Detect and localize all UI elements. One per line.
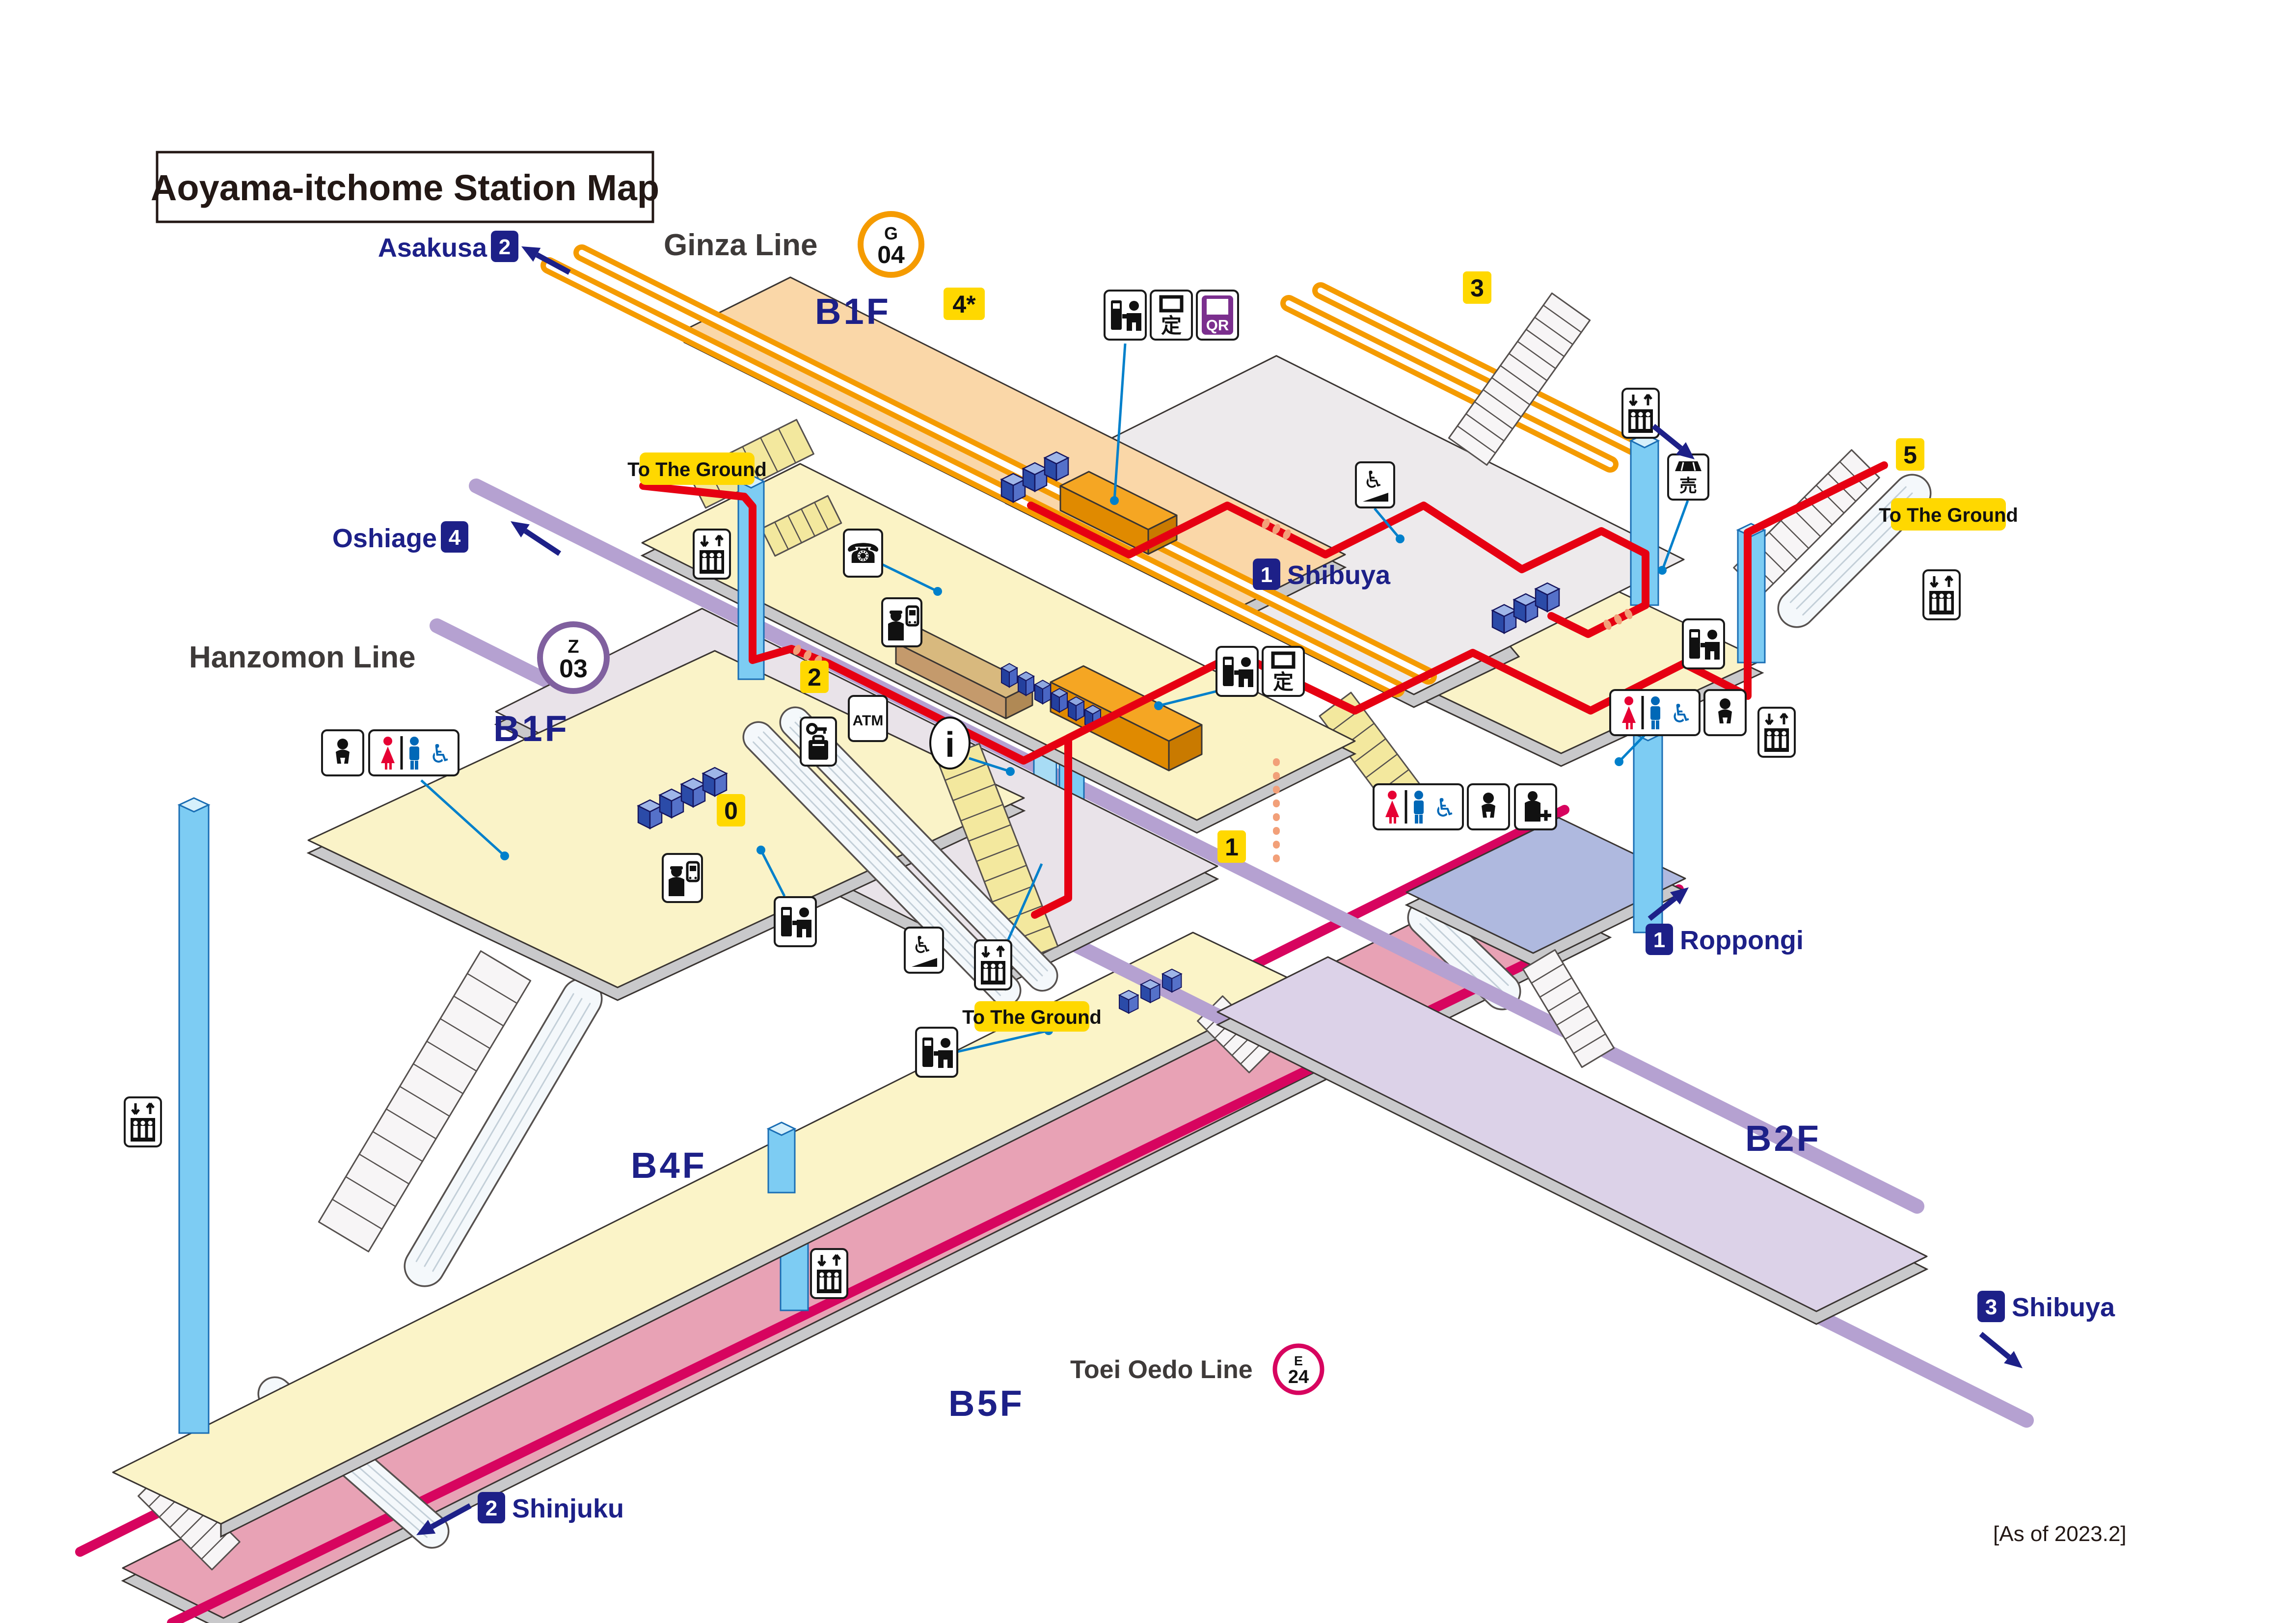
exit-badge-5: 5 [1896,438,1924,471]
svg-text:Oshiage: Oshiage [332,524,437,553]
floor-label-b4f: B4F [631,1145,707,1186]
station-office-icon [882,598,921,646]
svg-text:2: 2 [499,235,511,259]
svg-text:To The Ground: To The Ground [962,1007,1102,1028]
atm-icon [849,696,887,741]
toilets-icon-west [369,730,459,775]
commuter-pass-icon [1151,291,1192,340]
toilets-icon-b2f [1374,784,1463,829]
b2f-elevator-shaft [1634,734,1662,932]
svg-text:5: 5 [1903,441,1917,469]
baby-care-icon-east [1704,690,1746,735]
svg-text:2: 2 [486,1496,497,1520]
shibuya-hanzomon-arrow [1981,1334,2023,1368]
ginza-line-label: Ginza Line G 04 [664,214,921,275]
elevator-icon-exit5 [1923,570,1960,619]
svg-text:0: 0 [724,797,738,825]
svg-text:E: E [1294,1354,1303,1368]
phone-icon [844,530,882,577]
elevator-icon-east [1758,708,1795,757]
svg-text:1: 1 [1261,563,1272,587]
baby-care-icon-b2f [1468,784,1509,829]
commuter-pass-icon-concourse [1263,647,1304,696]
svg-text:3: 3 [1985,1295,1997,1319]
svg-text:1: 1 [1225,833,1239,861]
ground-label-west: To The Ground [627,452,767,485]
svg-text:24: 24 [1288,1367,1309,1387]
b4f-elevator-box [768,1129,795,1193]
b4f-corridor [113,932,1301,1524]
oedo-line-label: Toei Oedo Line E 24 [1070,1346,1322,1393]
svg-text:Hanzomon Line: Hanzomon Line [189,640,416,674]
svg-text:Z: Z [567,637,579,657]
floor-label-b5f: B5F [948,1383,1025,1424]
elevator-icon-east-top [1622,389,1659,438]
map-canvas: 定 QR ATM ☎ [0,0,2296,1623]
svg-text:Ginza Line: Ginza Line [664,228,817,262]
svg-text:03: 03 [559,655,588,683]
elevator-icon-center [975,940,1011,989]
ticket-gate-icon-concourse [1216,647,1258,696]
wheelchair-slope-icon-center [905,928,943,973]
station-map: 定 QR ATM ☎ [0,0,2296,1623]
toilets-icon-east [1610,690,1700,735]
svg-text:2: 2 [808,664,821,691]
svg-text:3: 3 [1470,274,1484,302]
elevator-icon-ground [694,530,730,579]
ticket-gate-icon-west [775,897,816,946]
b4f-corridor-side [221,984,1301,1537]
as-of-note: [As of 2023.2] [1993,1522,2127,1546]
baby-care-icon-west [322,730,363,775]
left-elevator-shaft [179,805,209,1433]
b5f-level [80,810,1679,1623]
svg-text:Roppongi: Roppongi [1680,926,1804,955]
information-icon: i [930,718,970,769]
exit-badge-1: 1 [1217,830,1246,863]
exit-badge-0: 0 [717,794,745,826]
direction-oshiage: Oshiage 4 [332,521,560,554]
floor-label-b1f-ginza: B1F [815,291,891,332]
svg-text:Shinjuku: Shinjuku [512,1494,624,1523]
svg-text:1: 1 [1653,928,1665,952]
ticket-gate-icon-east [1683,619,1724,668]
medical-room-icon [1515,784,1556,829]
svg-text:Shibuya: Shibuya [1287,560,1391,590]
svg-text:i: i [945,725,955,765]
exit-badge-3: 3 [1463,271,1491,304]
page-title: Aoyama-itchome Station Map [151,167,659,208]
qr-gate-icon [1197,291,1238,340]
svg-text:G: G [884,223,898,243]
svg-text:Asakusa: Asakusa [378,233,487,263]
floor-label-b1f-west: B1F [493,708,569,749]
ticket-gate-icon-b4f [916,1028,957,1077]
svg-text:Shibuya: Shibuya [2012,1293,2115,1322]
kiosk-icon [1668,454,1708,500]
ground-label-center: To The Ground [962,1001,1102,1032]
exit-badge-2: 2 [800,661,829,693]
wheelchair-slope-icon-exit3 [1356,462,1394,507]
svg-text:4*: 4* [952,291,976,318]
elevator-icon-west [125,1097,161,1146]
elevator-icon-b5f [811,1249,847,1298]
title-box: Aoyama-itchome Station Map [151,152,659,222]
svg-text:4: 4 [449,526,461,550]
floor-label-b2f: B2F [1745,1118,1821,1159]
svg-text:To The Ground: To The Ground [1879,505,2018,526]
ticket-gate-icon [1105,291,1146,340]
station-office-icon-west [663,854,702,902]
exit-badge-4: 4* [944,288,985,320]
svg-text:Toei Oedo Line: Toei Oedo Line [1070,1356,1253,1384]
ground-label-east: To The Ground [1879,498,2018,531]
svg-text:To The Ground: To The Ground [627,459,767,480]
coin-locker-icon [801,718,836,766]
direction-shibuya-hanzomon: 3 Shibuya [1977,1291,2115,1368]
svg-text:04: 04 [877,241,905,268]
